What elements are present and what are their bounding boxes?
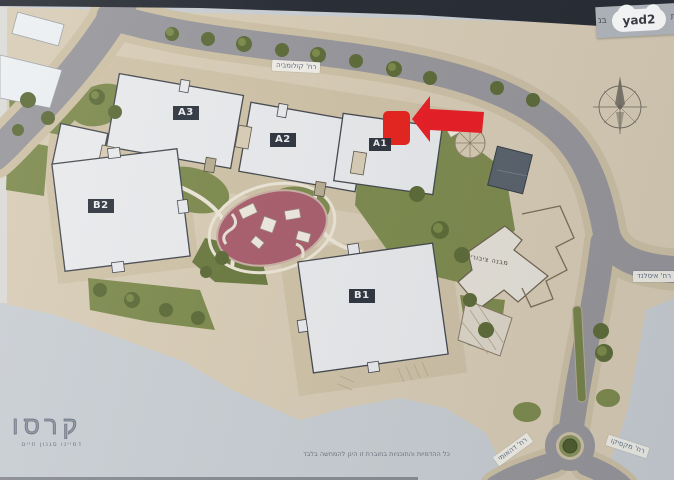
building-b1 <box>297 243 448 373</box>
site-plan-drawing <box>0 0 674 480</box>
header-plate-text-right: ות <box>670 12 674 22</box>
site-plan-photo: ות בנ yad2 A3 A2 A1 B2 B1 מבנה ציבורי רח… <box>0 0 674 480</box>
header-plate: ות בנ yad2 <box>595 3 674 38</box>
building-label-b2: B2 <box>88 199 114 213</box>
yad2-logo: yad2 <box>611 8 666 33</box>
building-b2 <box>52 147 190 272</box>
developer-tagline: דמיינו סגנון חיים <box>12 441 82 448</box>
building-label-a3: A3 <box>173 106 199 120</box>
roundabout <box>545 421 595 471</box>
building-label-a1: A1 <box>369 138 391 151</box>
building-label-a2: A2 <box>270 133 296 147</box>
developer-logo: קרסו <box>12 412 82 440</box>
developer-logo-block: קרסו דמיינו סגנון חיים <box>12 412 82 448</box>
disclaimer-text: כל ההדמיות והתוכניות בחוברת זו הינן להמח… <box>303 450 450 458</box>
building-label-b1: B1 <box>349 289 375 303</box>
header-plate-text-left: בנ <box>598 16 607 26</box>
yad2-logo-text: yad2 <box>612 12 667 29</box>
street-label-iceland: רח' איסלנד <box>633 271 674 282</box>
